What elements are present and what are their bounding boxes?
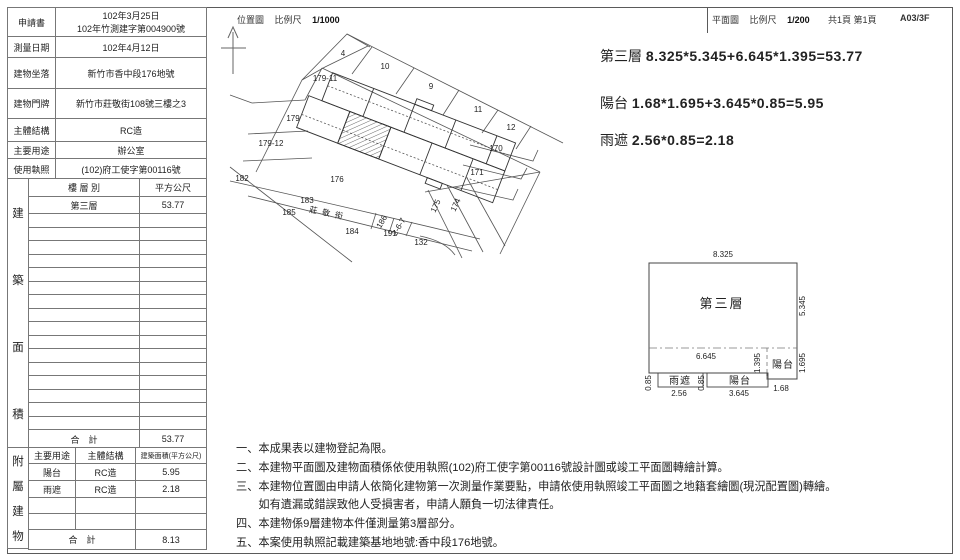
empty-cell: [140, 376, 207, 390]
lot-label: 186: [375, 213, 390, 230]
plan-dim-label: 2.56: [671, 389, 687, 398]
lot-label: 11: [474, 105, 483, 114]
info-label: 使用執照: [8, 159, 56, 180]
empty-cell: [29, 268, 140, 282]
subject-unit-hatched: [338, 111, 391, 159]
info-table: 申請書102年3月25日102年竹測建字第004900號測量日期102年4月12…: [7, 7, 207, 180]
empty-cell: [29, 514, 76, 530]
empty-floor-row: [29, 241, 207, 255]
empty-floor-row: [29, 214, 207, 228]
lot-label: 179: [286, 114, 300, 123]
info-label: 測量日期: [8, 37, 56, 58]
side-label-char: 建: [12, 503, 24, 519]
lot-label: 184: [345, 227, 359, 236]
empty-cell: [76, 514, 136, 530]
empty-floor-row: [29, 281, 207, 295]
empty-cell: [140, 349, 207, 363]
location-map: 410179-1191117912179-1217017118217618318…: [215, 24, 575, 264]
annex-area: 5.95: [136, 464, 207, 481]
note-line: 一、本成果表以建物登記為限。: [236, 440, 946, 459]
empty-annex-row: [29, 514, 207, 530]
empty-annex-row: [29, 498, 207, 514]
empty-cell: [29, 227, 140, 241]
annex-side-label: 附屬建物: [7, 447, 29, 549]
plan-scale-value: 1/200: [787, 15, 810, 25]
floor-row: 第三層53.77: [29, 197, 207, 214]
info-value: 新竹市香中段176地號: [56, 58, 207, 89]
empty-cell: [140, 308, 207, 322]
lot-label: 4: [341, 49, 346, 58]
plan-dimension-labels: 8.3255.345第三層6.6451.395陽台1.695雨遮0.850.85…: [644, 250, 807, 398]
empty-cell: [29, 349, 140, 363]
building-footprint: [294, 62, 517, 208]
empty-floor-row: [29, 308, 207, 322]
note-line: 二、本建物平面圖及建物面積係依使用執照(102)府工使字第00116號設計圖或竣…: [236, 459, 946, 478]
floor-plan: 8.3255.345第三層6.6451.395陽台1.695雨遮0.850.85…: [628, 240, 828, 408]
empty-cell: [140, 214, 207, 228]
empty-floor-row: [29, 254, 207, 268]
note-line: 五、本案使用執照記載建築基地地號:香中段176地號。: [236, 534, 946, 553]
note-line: 三、本建物位置圖由申請人依簡化建物第一次測量作業要點，申請依使用執照竣工平面圖之…: [236, 478, 946, 497]
lot-label: 170: [489, 144, 503, 153]
plan-dim-label: 3.645: [729, 389, 750, 398]
empty-floor-row: [29, 295, 207, 309]
annex-use: 雨遮: [29, 481, 76, 498]
empty-cell: [29, 498, 76, 514]
plan-dim-label: 陽台: [772, 358, 794, 371]
side-label-char: 物: [12, 528, 24, 544]
note-line: 四、本建物係9層建物本件僅測量第3層部分。: [236, 515, 946, 534]
empty-cell: [140, 389, 207, 403]
empty-floor-row: [29, 322, 207, 336]
info-label: 主體結構: [8, 119, 56, 142]
plan-dim-label: 5.345: [798, 295, 807, 316]
annex-row: 陽台RC造5.95: [29, 464, 207, 481]
lot-label: 175: [429, 197, 443, 213]
formula-line: 第三層 8.325*5.345+6.645*1.395=53.77: [600, 46, 863, 66]
empty-floor-row: [29, 403, 207, 417]
empty-floor-row: [29, 416, 207, 430]
lot-label: 9: [429, 82, 434, 91]
floor-plan-title: 平面圖: [712, 15, 739, 25]
empty-cell: [136, 514, 207, 530]
empty-cell: [29, 416, 140, 430]
empty-floor-row: [29, 349, 207, 363]
info-label: 建物坐落: [8, 58, 56, 89]
notes-block: 一、本成果表以建物登記為限。二、本建物平面圖及建物面積係依使用執照(102)府工…: [236, 440, 946, 553]
annex-use: 陽台: [29, 464, 76, 481]
lot-label: 12: [507, 123, 516, 132]
info-row: 申請書102年3月25日102年竹測建字第004900號: [8, 8, 207, 37]
annex-header-row: 主要用途 主體結構 建築面積(平方公尺): [29, 448, 207, 464]
side-label-char: 積: [12, 406, 24, 422]
annex-total-row: 合 計8.13: [29, 530, 207, 550]
plan-dim-label: 6.645: [696, 352, 717, 361]
lot-label: 176: [330, 175, 344, 184]
plan-dim-label: 1.695: [798, 352, 807, 373]
empty-cell: [76, 498, 136, 514]
info-value: 102年4月12日: [56, 37, 207, 58]
plan-dim-label: 第三層: [699, 296, 744, 311]
empty-cell: [29, 376, 140, 390]
empty-cell: [140, 281, 207, 295]
empty-cell: [29, 322, 140, 336]
formula-line: 陽台 1.68*1.695+3.645*0.85=5.95: [600, 93, 824, 113]
side-label-char: 建: [12, 205, 24, 221]
col-floor: 樓 層 別: [29, 179, 140, 197]
empty-cell: [140, 227, 207, 241]
side-label-char: 屬: [12, 478, 24, 494]
empty-cell: [29, 308, 140, 322]
plan-dim-label: 雨遮: [669, 374, 691, 387]
lot-label: 185: [282, 208, 296, 217]
empty-cell: [140, 295, 207, 309]
col-annex-area: 建築面積(平方公尺): [136, 448, 207, 464]
empty-floor-row: [29, 376, 207, 390]
info-value: 102年3月25日102年竹測建字第004900號: [56, 8, 207, 37]
lot-label: 10: [381, 62, 390, 71]
empty-cell: [29, 403, 140, 417]
floor-name: 第三層: [29, 197, 140, 214]
info-row: 建物門牌新竹市莊敬街108號三樓之3: [8, 89, 207, 119]
plan-dim-label: 0.85: [644, 375, 653, 391]
plan-dim-label: 1.68: [773, 384, 789, 393]
empty-cell: [136, 498, 207, 514]
floor-area-table: 樓 層 別 平方公尺 第三層53.77合 計53.77: [28, 178, 207, 449]
empty-cell: [140, 241, 207, 255]
survey-result-sheet: 位置圖 比例尺 1/1000 平面圖 比例尺 1/200 共1頁 第1頁 A03…: [0, 0, 960, 560]
lot-label: 179-12: [259, 139, 284, 148]
area-total-value: 53.77: [140, 430, 207, 449]
col-structure: 主體結構: [76, 448, 136, 464]
info-row: 主體結構RC造: [8, 119, 207, 142]
col-use: 主要用途: [29, 448, 76, 464]
header-divider: [707, 7, 708, 33]
info-label: 申請書: [8, 8, 56, 37]
empty-cell: [29, 214, 140, 228]
info-value: 辦公室: [56, 142, 207, 159]
info-value: (102)府工使字第00116號: [56, 159, 207, 180]
lot-label: 182: [235, 174, 249, 183]
page-count: 共1頁 第1頁: [828, 13, 877, 26]
lot-label: 179-11: [313, 74, 338, 83]
formula-line: 雨遮 2.56*0.85=2.18: [600, 130, 734, 150]
floor-area: 53.77: [140, 197, 207, 214]
side-label-char: 築: [12, 272, 24, 288]
empty-cell: [29, 335, 140, 349]
info-row: 測量日期102年4月12日: [8, 37, 207, 58]
area-total-label: 合 計: [29, 430, 140, 449]
plan-dim-label: 0.85: [697, 375, 706, 391]
annex-total-value: 8.13: [136, 530, 207, 550]
plan-scale-label: 比例尺: [750, 15, 777, 25]
annex-row: 雨遮RC造2.18: [29, 481, 207, 498]
empty-cell: [140, 403, 207, 417]
annex-table: 主要用途 主體結構 建築面積(平方公尺) 陽台RC造5.95雨遮RC造2.18合…: [28, 447, 207, 550]
empty-cell: [29, 241, 140, 255]
lot-label: 132: [414, 238, 428, 247]
plan-dim-label: 8.325: [713, 250, 734, 259]
note-line: 如有遺漏或錯誤致他人受損害者，申請人願負一切法律責任。: [236, 496, 946, 515]
plan-dim-label: 陽台: [729, 374, 751, 387]
plan-dim-label: 1.395: [753, 352, 762, 373]
lot-label: 2-6-7: [390, 216, 407, 237]
empty-cell: [29, 254, 140, 268]
side-label-char: 附: [12, 453, 24, 469]
area-total-row: 合 計53.77: [29, 430, 207, 449]
col-sqm: 平方公尺: [140, 179, 207, 197]
empty-cell: [29, 295, 140, 309]
empty-floor-row: [29, 335, 207, 349]
info-label: 主要用途: [8, 142, 56, 159]
empty-floor-row: [29, 268, 207, 282]
info-row: 主要用途辦公室: [8, 142, 207, 159]
empty-cell: [29, 281, 140, 295]
empty-floor-row: [29, 362, 207, 376]
empty-cell: [29, 362, 140, 376]
sheet-code: A03/3F: [900, 13, 930, 23]
empty-cell: [140, 335, 207, 349]
lot-label: 171: [470, 168, 484, 177]
annex-area: 2.18: [136, 481, 207, 498]
empty-cell: [140, 322, 207, 336]
empty-floor-row: [29, 389, 207, 403]
annex-structure: RC造: [76, 464, 136, 481]
info-value: RC造: [56, 119, 207, 142]
empty-cell: [140, 254, 207, 268]
info-row: 使用執照(102)府工使字第00116號: [8, 159, 207, 180]
empty-cell: [140, 362, 207, 376]
empty-cell: [140, 268, 207, 282]
area-side-label: 建築面積: [7, 178, 29, 448]
empty-cell: [140, 416, 207, 430]
side-label-char: 面: [12, 339, 24, 355]
info-label: 建物門牌: [8, 89, 56, 119]
annex-structure: RC造: [76, 481, 136, 498]
lot-label: 183: [300, 196, 314, 205]
annex-total-label: 合 計: [29, 530, 136, 550]
empty-cell: [29, 389, 140, 403]
info-value: 新竹市莊敬街108號三樓之3: [56, 89, 207, 119]
empty-floor-row: [29, 227, 207, 241]
floor-plan-header: 平面圖 比例尺 1/200: [712, 13, 810, 26]
info-row: 建物坐落新竹市香中段176地號: [8, 58, 207, 89]
area-header-row: 樓 層 別 平方公尺: [29, 179, 207, 197]
